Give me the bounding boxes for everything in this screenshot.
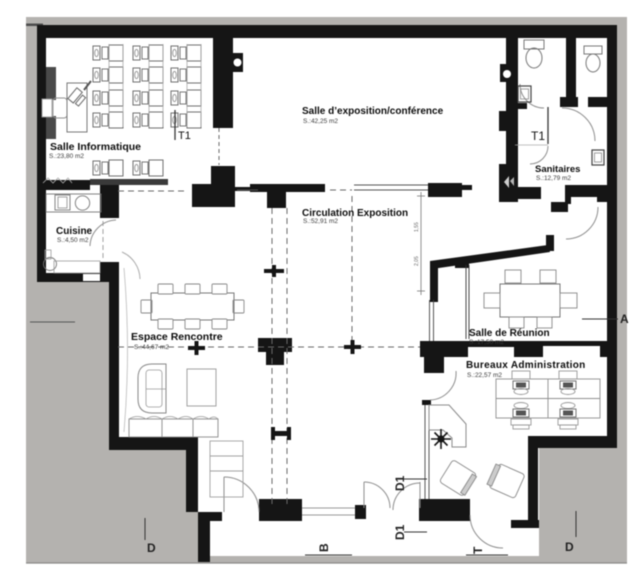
svg-text:S.:4,50 m2: S.:4,50 m2 bbox=[57, 237, 89, 244]
svg-text:2,05: 2,05 bbox=[414, 256, 420, 266]
svg-text:Salle de Réunion: Salle de Réunion bbox=[469, 328, 550, 339]
svg-text:S.:52,91 m2: S.:52,91 m2 bbox=[303, 218, 338, 225]
svg-text:D1: D1 bbox=[393, 475, 407, 491]
svg-text:Sanitaires: Sanitaires bbox=[535, 164, 580, 175]
svg-text:S.:22,57 m2: S.:22,57 m2 bbox=[467, 372, 502, 379]
svg-text:S.:44,67 m2: S.:44,67 m2 bbox=[134, 344, 169, 351]
svg-text:S.:23,80 m2: S.:23,80 m2 bbox=[49, 153, 84, 160]
svg-text:Espace Rencontre: Espace Rencontre bbox=[131, 331, 223, 343]
svg-text:Cuisine: Cuisine bbox=[56, 226, 93, 237]
svg-text:B: B bbox=[317, 543, 331, 552]
svg-text:A: A bbox=[620, 312, 629, 326]
svg-text:Salle d’exposition/conférence: Salle d’exposition/conférence bbox=[302, 106, 444, 117]
svg-text:T1: T1 bbox=[178, 130, 191, 142]
svg-text:S.:12,79 m2: S.:12,79 m2 bbox=[536, 175, 571, 182]
svg-text:1,55: 1,55 bbox=[414, 222, 420, 232]
svg-text:D: D bbox=[565, 540, 574, 554]
svg-text:S.:42,25 m2: S.:42,25 m2 bbox=[303, 118, 338, 125]
svg-text:S.:17,50 m2: S.:17,50 m2 bbox=[469, 339, 504, 346]
svg-text:T: T bbox=[471, 546, 485, 554]
svg-text:T1: T1 bbox=[531, 129, 545, 143]
svg-text:Salle Informatique: Salle Informatique bbox=[50, 141, 141, 153]
svg-text:Bureaux Administration: Bureaux Administration bbox=[466, 360, 586, 371]
svg-text:D: D bbox=[147, 541, 156, 555]
